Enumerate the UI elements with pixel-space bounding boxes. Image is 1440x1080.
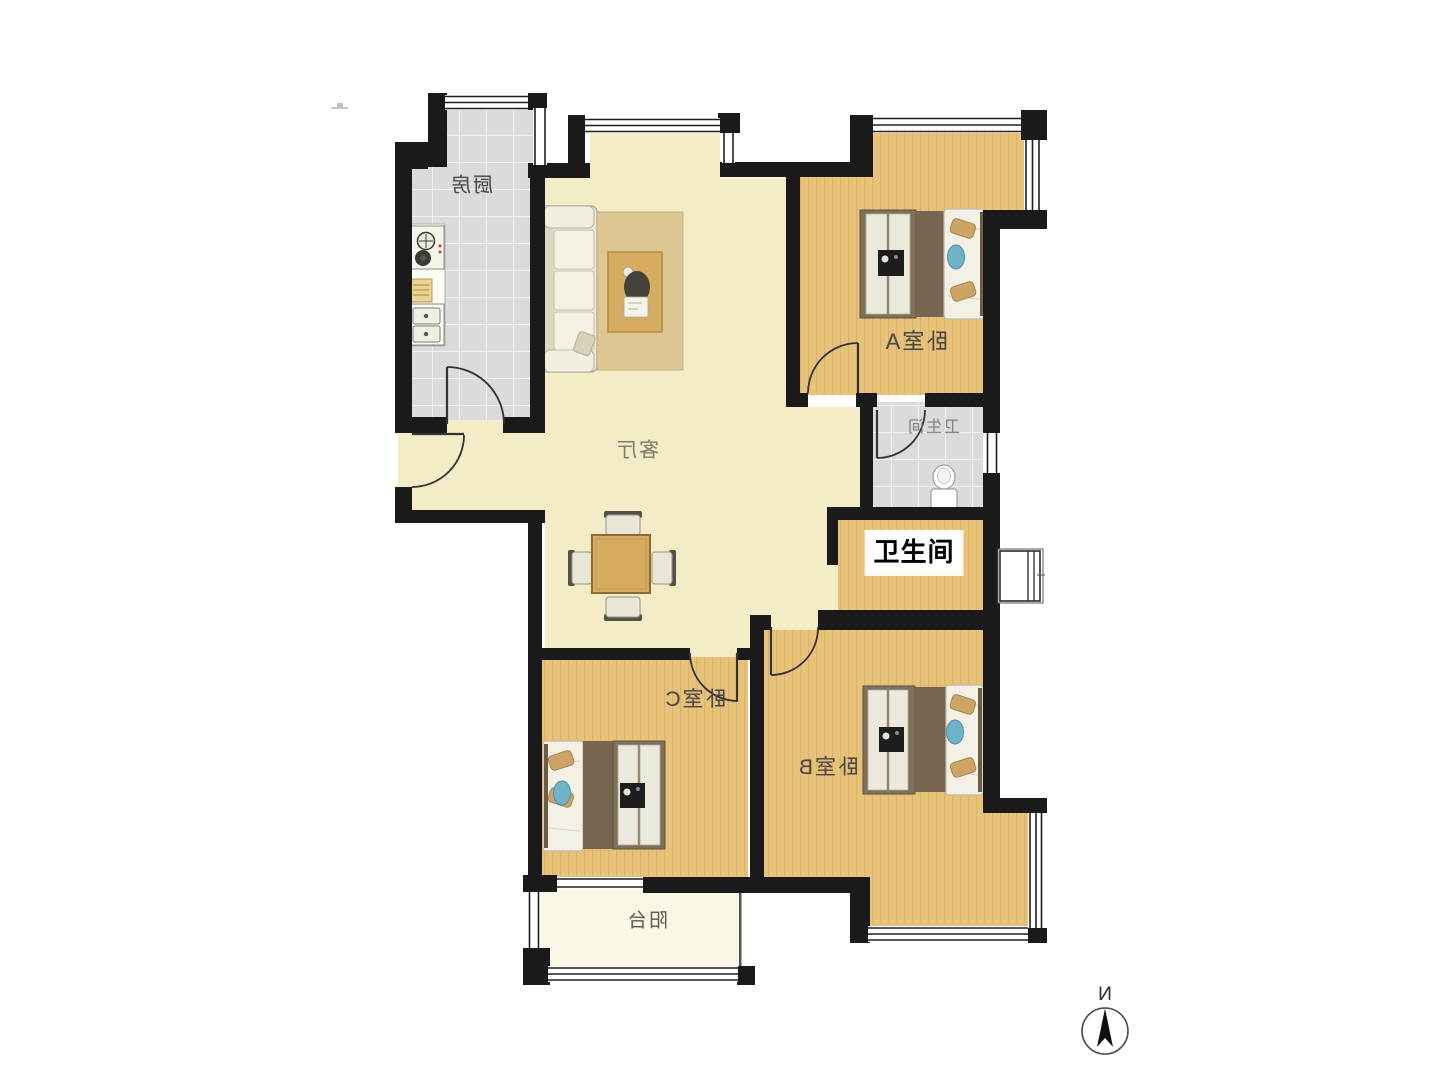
bathroom-label: 卫生间 <box>906 413 960 437</box>
watermark-mark <box>331 103 348 108</box>
kitchen-fixtures <box>407 224 445 346</box>
kitchen-label: 厨房 <box>449 169 493 198</box>
bedroom-c-label: 卧室C <box>663 683 726 713</box>
bedroom-a-furniture <box>860 209 984 319</box>
bedroom-c-furniture <box>543 741 665 851</box>
floorplan-page: 厨房 客厅 卧室A 卫生间 卫生间 卧室C 卧室B 阳台 N <box>0 0 1440 1080</box>
living-room-label: 客厅 <box>615 434 659 463</box>
floorplan-canvas <box>0 0 1440 1080</box>
compass-north-label: N <box>1098 984 1112 1006</box>
bathroom-annotation-label: 卫生间 <box>866 530 961 572</box>
bay-window-box <box>998 549 1045 603</box>
compass-icon <box>1082 1008 1128 1054</box>
sofa <box>540 206 597 372</box>
bedroom-b-furniture <box>863 685 983 795</box>
bedroom-b-label: 卧室B <box>797 751 859 781</box>
bedroom-a-label: 卧室A <box>884 324 949 356</box>
balcony-label: 阳台 <box>626 906 668 933</box>
coffee-table <box>608 252 662 332</box>
